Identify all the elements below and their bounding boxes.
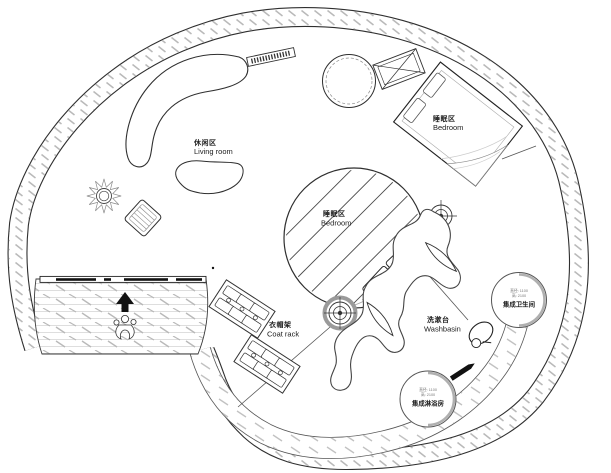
wall-shelf (247, 48, 296, 67)
round-table (323, 55, 376, 108)
coat-rack (234, 335, 300, 393)
bathroom-pod: 直径: 1100 高: 2100 集成卫生间 (492, 273, 547, 328)
coffee-table (176, 161, 243, 194)
label-coat-rack-zh: 衣帽架 (269, 320, 292, 329)
door-wall (40, 276, 206, 282)
label-bedroom-center-zh: 睡眠区 (323, 209, 346, 218)
bathroom-pod-label: 集成卫生间 (502, 300, 535, 309)
ac-unit (373, 49, 425, 90)
label-bedroom-upper-zh: 睡眠区 (433, 114, 456, 123)
door-handle (450, 361, 476, 380)
shower-pod-dim2: 高: 2100 (421, 392, 435, 397)
bathroom-pod-dim1: 直径: 1100 (510, 288, 528, 293)
label-living-en: Living room (194, 147, 233, 156)
entry-deck (34, 276, 208, 354)
label-living-zh: 休闲区 (193, 138, 217, 147)
toilet (464, 318, 500, 353)
label-washbasin-en: Washbasin (424, 325, 461, 334)
label-washbasin-zh: 洗漱台 (427, 315, 450, 324)
plan-dot (212, 267, 214, 269)
plant (87, 179, 121, 213)
partition-line-bedroom (502, 146, 536, 159)
label-bedroom-center-en: Bedroom (321, 219, 351, 228)
label-bedroom-upper-en: Bedroom (433, 123, 463, 132)
bathroom-pod-dim2: 高: 2100 (512, 293, 526, 298)
shower-pod-dim1: 直径: 1100 (419, 387, 437, 392)
label-coat-rack-en: Coat rack (267, 330, 299, 339)
floor-plan-svg: 直径: 1100 高: 2100 集成卫生间 直径: 1100 高: 2100 … (0, 0, 611, 473)
coat-rack (209, 280, 275, 338)
floor-plan-canvas: 直径: 1100 高: 2100 集成卫生间 直径: 1100 高: 2100 … (0, 0, 611, 473)
shower-pod: 直径: 1100 高: 2100 集成淋浴房 (400, 371, 456, 427)
shower-pod-label: 集成淋浴房 (411, 399, 445, 408)
lounge-chair (124, 199, 162, 237)
